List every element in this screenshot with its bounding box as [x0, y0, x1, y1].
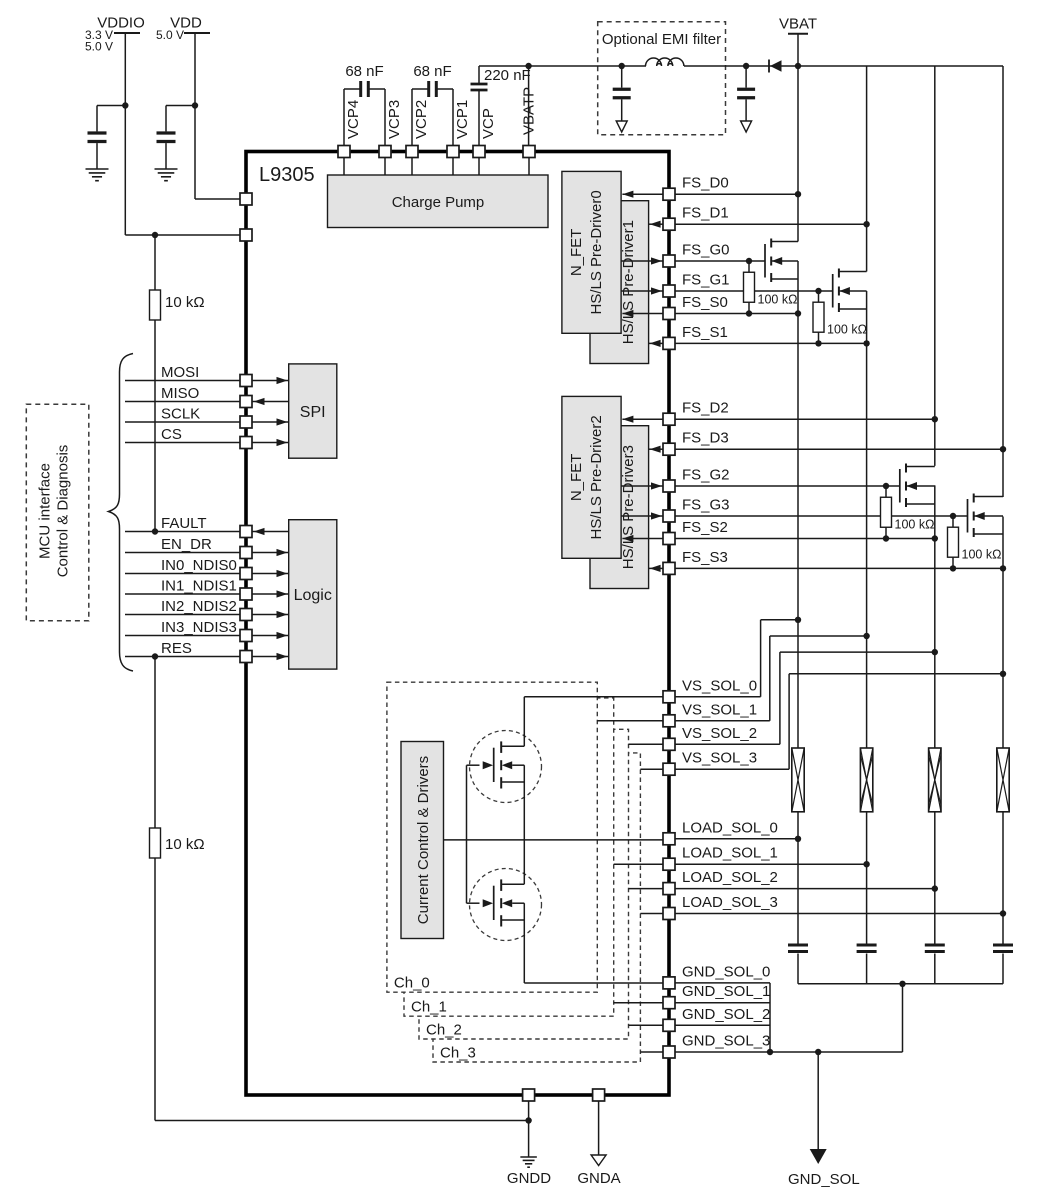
svg-text:HS/LS Pre-Driver3: HS/LS Pre-Driver3 — [620, 445, 637, 569]
svg-text:10 kΩ: 10 kΩ — [165, 836, 205, 853]
svg-text:Logic: Logic — [294, 587, 332, 604]
svg-text:Control & Diagnosis: Control & Diagnosis — [55, 445, 72, 578]
svg-text:SPI: SPI — [300, 404, 326, 421]
svg-text:VCP2: VCP2 — [413, 100, 430, 139]
svg-text:VCP1: VCP1 — [454, 100, 471, 139]
svg-text:FS_D2: FS_D2 — [682, 400, 729, 417]
svg-text:CS: CS — [161, 426, 182, 443]
svg-text:VS_SOL_3: VS_SOL_3 — [682, 750, 757, 767]
svg-text:Charge Pump: Charge Pump — [392, 194, 485, 211]
svg-text:N_FET: N_FET — [568, 229, 585, 277]
svg-text:HS/LS Pre-Driver0: HS/LS Pre-Driver0 — [588, 190, 605, 314]
svg-text:FAULT: FAULT — [161, 515, 207, 532]
svg-text:FS_S2: FS_S2 — [682, 519, 728, 536]
svg-text:Current Control & Drivers: Current Control & Drivers — [415, 756, 432, 924]
svg-text:GND_SOL: GND_SOL — [788, 1171, 860, 1188]
svg-text:FS_D0: FS_D0 — [682, 175, 729, 192]
svg-text:GND_SOL_0: GND_SOL_0 — [682, 963, 770, 980]
svg-text:IN0_NDIS0: IN0_NDIS0 — [161, 557, 237, 574]
svg-text:68 nF: 68 nF — [413, 63, 451, 80]
svg-text:HS/LS Pre-Driver2: HS/LS Pre-Driver2 — [588, 415, 605, 539]
svg-text:FS_S3: FS_S3 — [682, 549, 728, 566]
svg-text:FS_G2: FS_G2 — [682, 467, 730, 484]
svg-text:LOAD_SOL_0: LOAD_SOL_0 — [682, 819, 778, 836]
svg-text:VBAT: VBAT — [779, 16, 817, 33]
svg-text:Ch_1: Ch_1 — [411, 999, 447, 1016]
svg-text:MISO: MISO — [161, 385, 199, 402]
svg-text:Ch_2: Ch_2 — [426, 1022, 462, 1039]
svg-text:VS_SOL_0: VS_SOL_0 — [682, 677, 757, 694]
svg-text:EN_DR: EN_DR — [161, 536, 212, 553]
svg-text:FS_S0: FS_S0 — [682, 294, 728, 311]
svg-text:FS_G0: FS_G0 — [682, 242, 730, 259]
svg-text:GNDA: GNDA — [577, 1170, 620, 1187]
svg-text:FS_S1: FS_S1 — [682, 324, 728, 341]
svg-text:Ch_0: Ch_0 — [394, 975, 430, 992]
svg-text:VCP: VCP — [480, 108, 497, 139]
svg-text:Optional EMI filter: Optional EMI filter — [602, 31, 721, 48]
svg-text:FS_G1: FS_G1 — [682, 272, 730, 289]
svg-text:MCU interface: MCU interface — [37, 463, 54, 559]
svg-text:VCP3: VCP3 — [386, 100, 403, 139]
svg-text:GND_SOL_3: GND_SOL_3 — [682, 1033, 770, 1050]
svg-text:IN3_NDIS3: IN3_NDIS3 — [161, 619, 237, 636]
svg-text:100 kΩ: 100 kΩ — [758, 293, 798, 307]
svg-text:RES: RES — [161, 640, 192, 657]
svg-text:IN2_NDIS2: IN2_NDIS2 — [161, 598, 237, 615]
svg-text:FS_G3: FS_G3 — [682, 497, 730, 514]
svg-text:220 nF: 220 nF — [484, 67, 531, 84]
svg-text:MOSI: MOSI — [161, 364, 199, 381]
svg-text:SCLK: SCLK — [161, 406, 200, 423]
svg-text:GND_SOL_2: GND_SOL_2 — [682, 1006, 770, 1023]
svg-text:GNDD: GNDD — [507, 1170, 551, 1187]
svg-text:10 kΩ: 10 kΩ — [165, 294, 205, 311]
svg-text:VCP4: VCP4 — [345, 100, 362, 139]
svg-text:100 kΩ: 100 kΩ — [962, 547, 1002, 561]
svg-text:LOAD_SOL_3: LOAD_SOL_3 — [682, 894, 778, 911]
svg-text:100 kΩ: 100 kΩ — [895, 518, 935, 532]
svg-text:FS_D1: FS_D1 — [682, 205, 729, 222]
svg-text:68 nF: 68 nF — [345, 63, 383, 80]
svg-text:N_FET: N_FET — [568, 454, 585, 502]
svg-text:Ch_3: Ch_3 — [440, 1045, 476, 1062]
svg-text:IN1_NDIS1: IN1_NDIS1 — [161, 578, 237, 595]
svg-text:5.0 V: 5.0 V — [156, 28, 184, 42]
svg-text:VS_SOL_1: VS_SOL_1 — [682, 701, 757, 718]
svg-text:LOAD_SOL_1: LOAD_SOL_1 — [682, 845, 778, 862]
svg-text:100 kΩ: 100 kΩ — [827, 322, 867, 336]
svg-text:HS/LS Pre-Driver1: HS/LS Pre-Driver1 — [620, 220, 637, 344]
svg-text:FS_D3: FS_D3 — [682, 430, 729, 447]
svg-text:GND_SOL_1: GND_SOL_1 — [682, 983, 770, 1000]
svg-text:VS_SOL_2: VS_SOL_2 — [682, 725, 757, 742]
svg-text:LOAD_SOL_2: LOAD_SOL_2 — [682, 869, 778, 886]
svg-text:5.0 V: 5.0 V — [85, 40, 113, 54]
svg-text:L9305: L9305 — [259, 164, 315, 186]
